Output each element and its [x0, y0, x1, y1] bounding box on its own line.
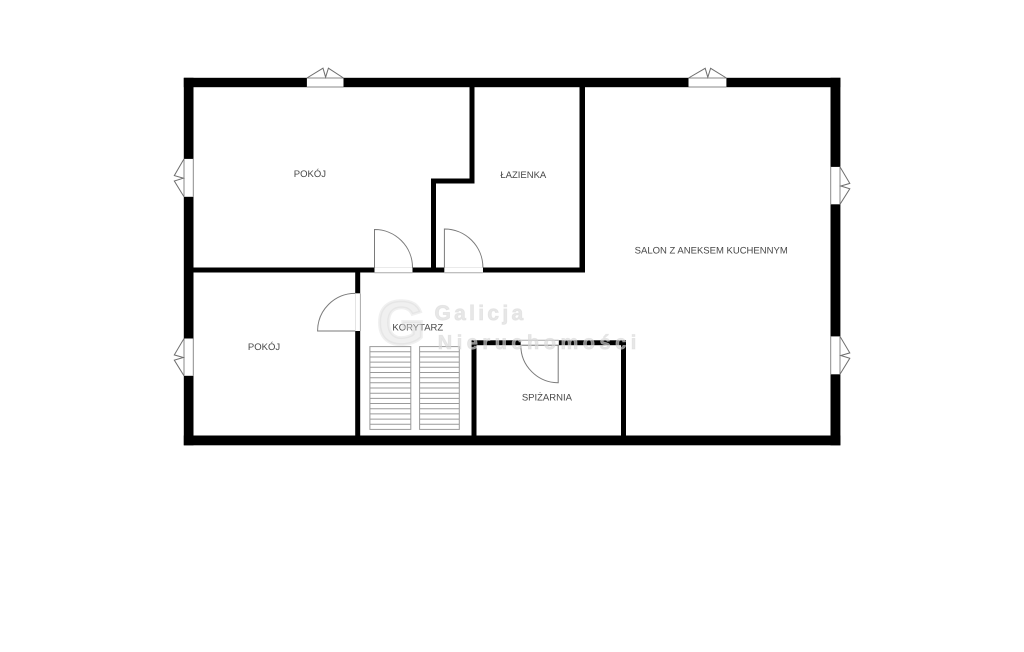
- svg-text:G: G: [377, 289, 425, 358]
- svg-text:POKÓJ: POKÓJ: [294, 168, 326, 180]
- svg-text:Nieruchomości: Nieruchomości: [438, 332, 641, 354]
- svg-text:ŁAZIENKA: ŁAZIENKA: [500, 170, 547, 181]
- svg-text:POKÓJ: POKÓJ: [248, 341, 280, 353]
- svg-text:SALON Z ANEKSEM KUCHENNYM: SALON Z ANEKSEM KUCHENNYM: [635, 246, 788, 257]
- svg-text:Galicja: Galicja: [435, 302, 527, 325]
- svg-text:SPIŻARNIA: SPIŻARNIA: [522, 391, 573, 403]
